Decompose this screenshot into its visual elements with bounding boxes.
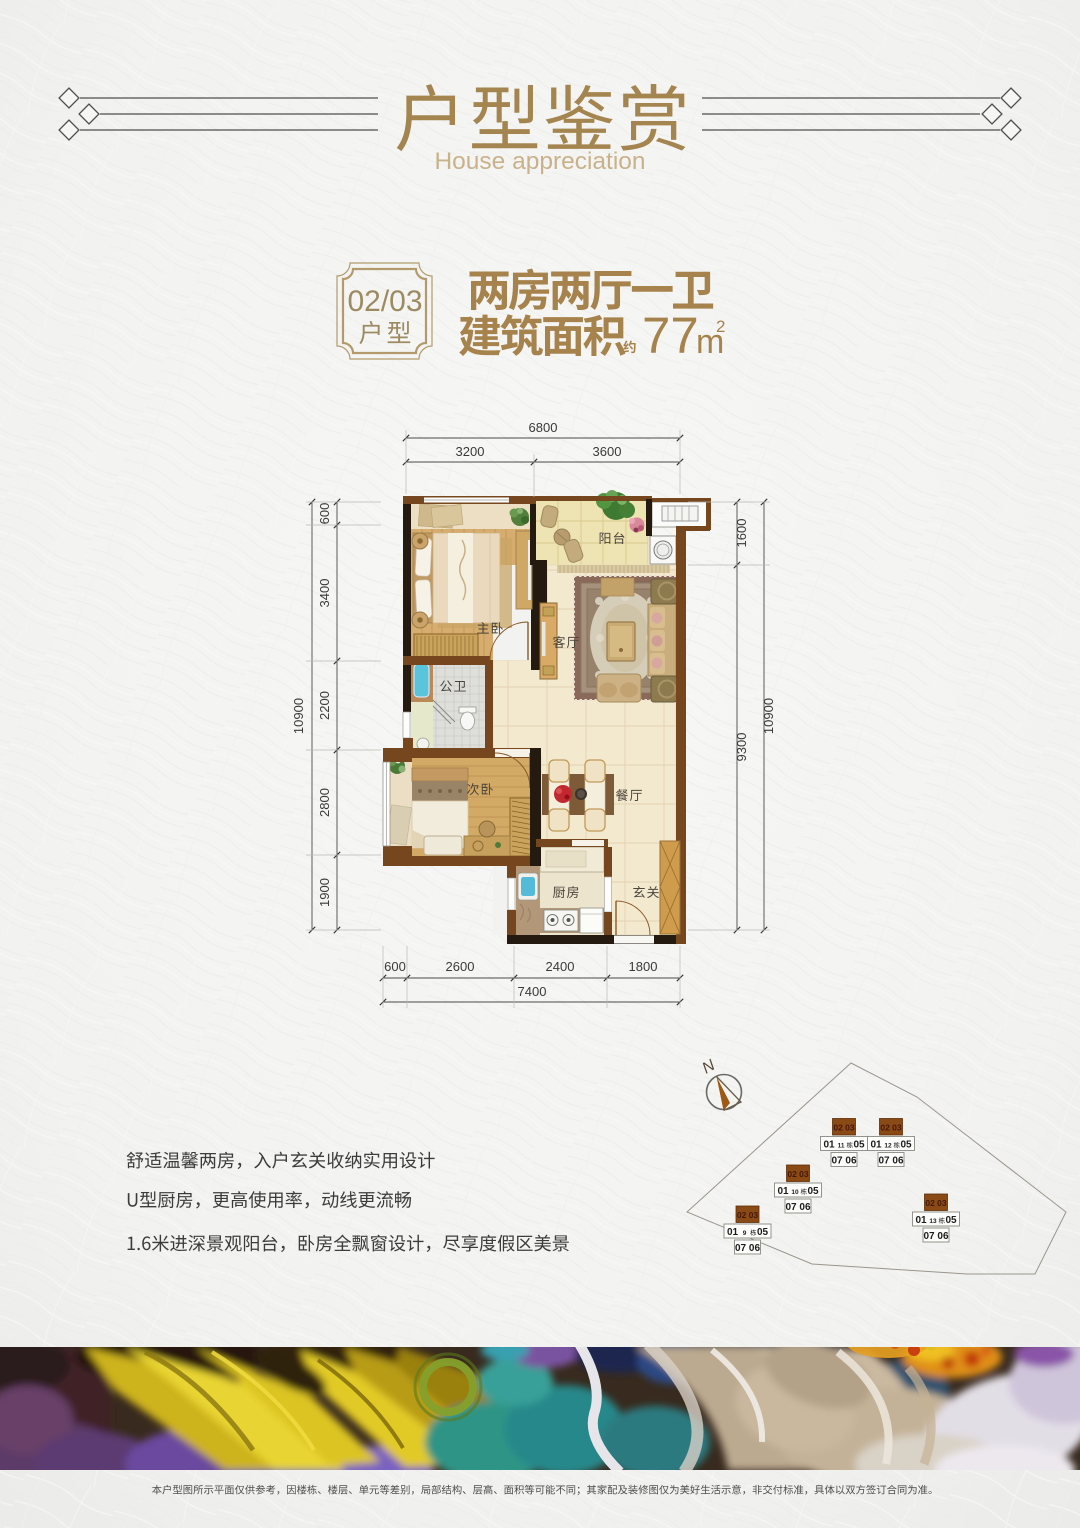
svg-text:07 06: 07 06 <box>831 1156 856 1167</box>
svg-text:05: 05 <box>853 1140 865 1151</box>
svg-text:2200: 2200 <box>317 691 332 720</box>
svg-text:02/03: 02/03 <box>347 285 422 318</box>
svg-text:2800: 2800 <box>317 788 332 817</box>
svg-text:13: 13 <box>929 1218 937 1225</box>
svg-text:3400: 3400 <box>317 579 332 608</box>
svg-text:02 03: 02 03 <box>737 1210 759 1220</box>
svg-text:02 03: 02 03 <box>880 1123 902 1133</box>
svg-text:77: 77 <box>642 307 699 364</box>
svg-text:05: 05 <box>945 1215 957 1226</box>
svg-text:10900: 10900 <box>291 698 306 734</box>
svg-text:2400: 2400 <box>546 959 575 974</box>
svg-text:05: 05 <box>807 1186 819 1197</box>
svg-text:6800: 6800 <box>529 420 558 435</box>
svg-text:10900: 10900 <box>761 698 776 734</box>
svg-text:01: 01 <box>915 1215 927 1226</box>
svg-text:9: 9 <box>743 1230 747 1237</box>
svg-text:9300: 9300 <box>734 733 749 762</box>
svg-text:01: 01 <box>777 1186 789 1197</box>
svg-text:2: 2 <box>716 317 725 336</box>
svg-text:600: 600 <box>384 959 406 974</box>
svg-text:02 03: 02 03 <box>925 1198 947 1208</box>
svg-text:11: 11 <box>838 1143 845 1150</box>
svg-text:House appreciation: House appreciation <box>434 148 645 175</box>
svg-text:1900: 1900 <box>317 878 332 907</box>
svg-text:07 06: 07 06 <box>878 1156 903 1167</box>
svg-text:1600: 1600 <box>734 519 749 548</box>
svg-text:02 03: 02 03 <box>787 1169 809 1179</box>
svg-text:1800: 1800 <box>629 959 658 974</box>
svg-text:05: 05 <box>757 1227 769 1238</box>
svg-text:07 06: 07 06 <box>735 1243 760 1254</box>
svg-text:3200: 3200 <box>456 444 485 459</box>
svg-text:07 06: 07 06 <box>923 1231 948 1242</box>
svg-text:01: 01 <box>727 1227 739 1238</box>
svg-text:07 06: 07 06 <box>785 1202 810 1213</box>
svg-text:05: 05 <box>900 1140 912 1151</box>
svg-text:2600: 2600 <box>446 959 475 974</box>
svg-text:3600: 3600 <box>593 444 622 459</box>
svg-text:01: 01 <box>823 1140 835 1151</box>
svg-text:600: 600 <box>317 503 332 525</box>
svg-text:12: 12 <box>884 1143 892 1150</box>
svg-text:7400: 7400 <box>518 984 547 999</box>
svg-text:01: 01 <box>870 1140 882 1151</box>
svg-text:10: 10 <box>791 1189 799 1196</box>
svg-text:02 03: 02 03 <box>833 1123 855 1133</box>
